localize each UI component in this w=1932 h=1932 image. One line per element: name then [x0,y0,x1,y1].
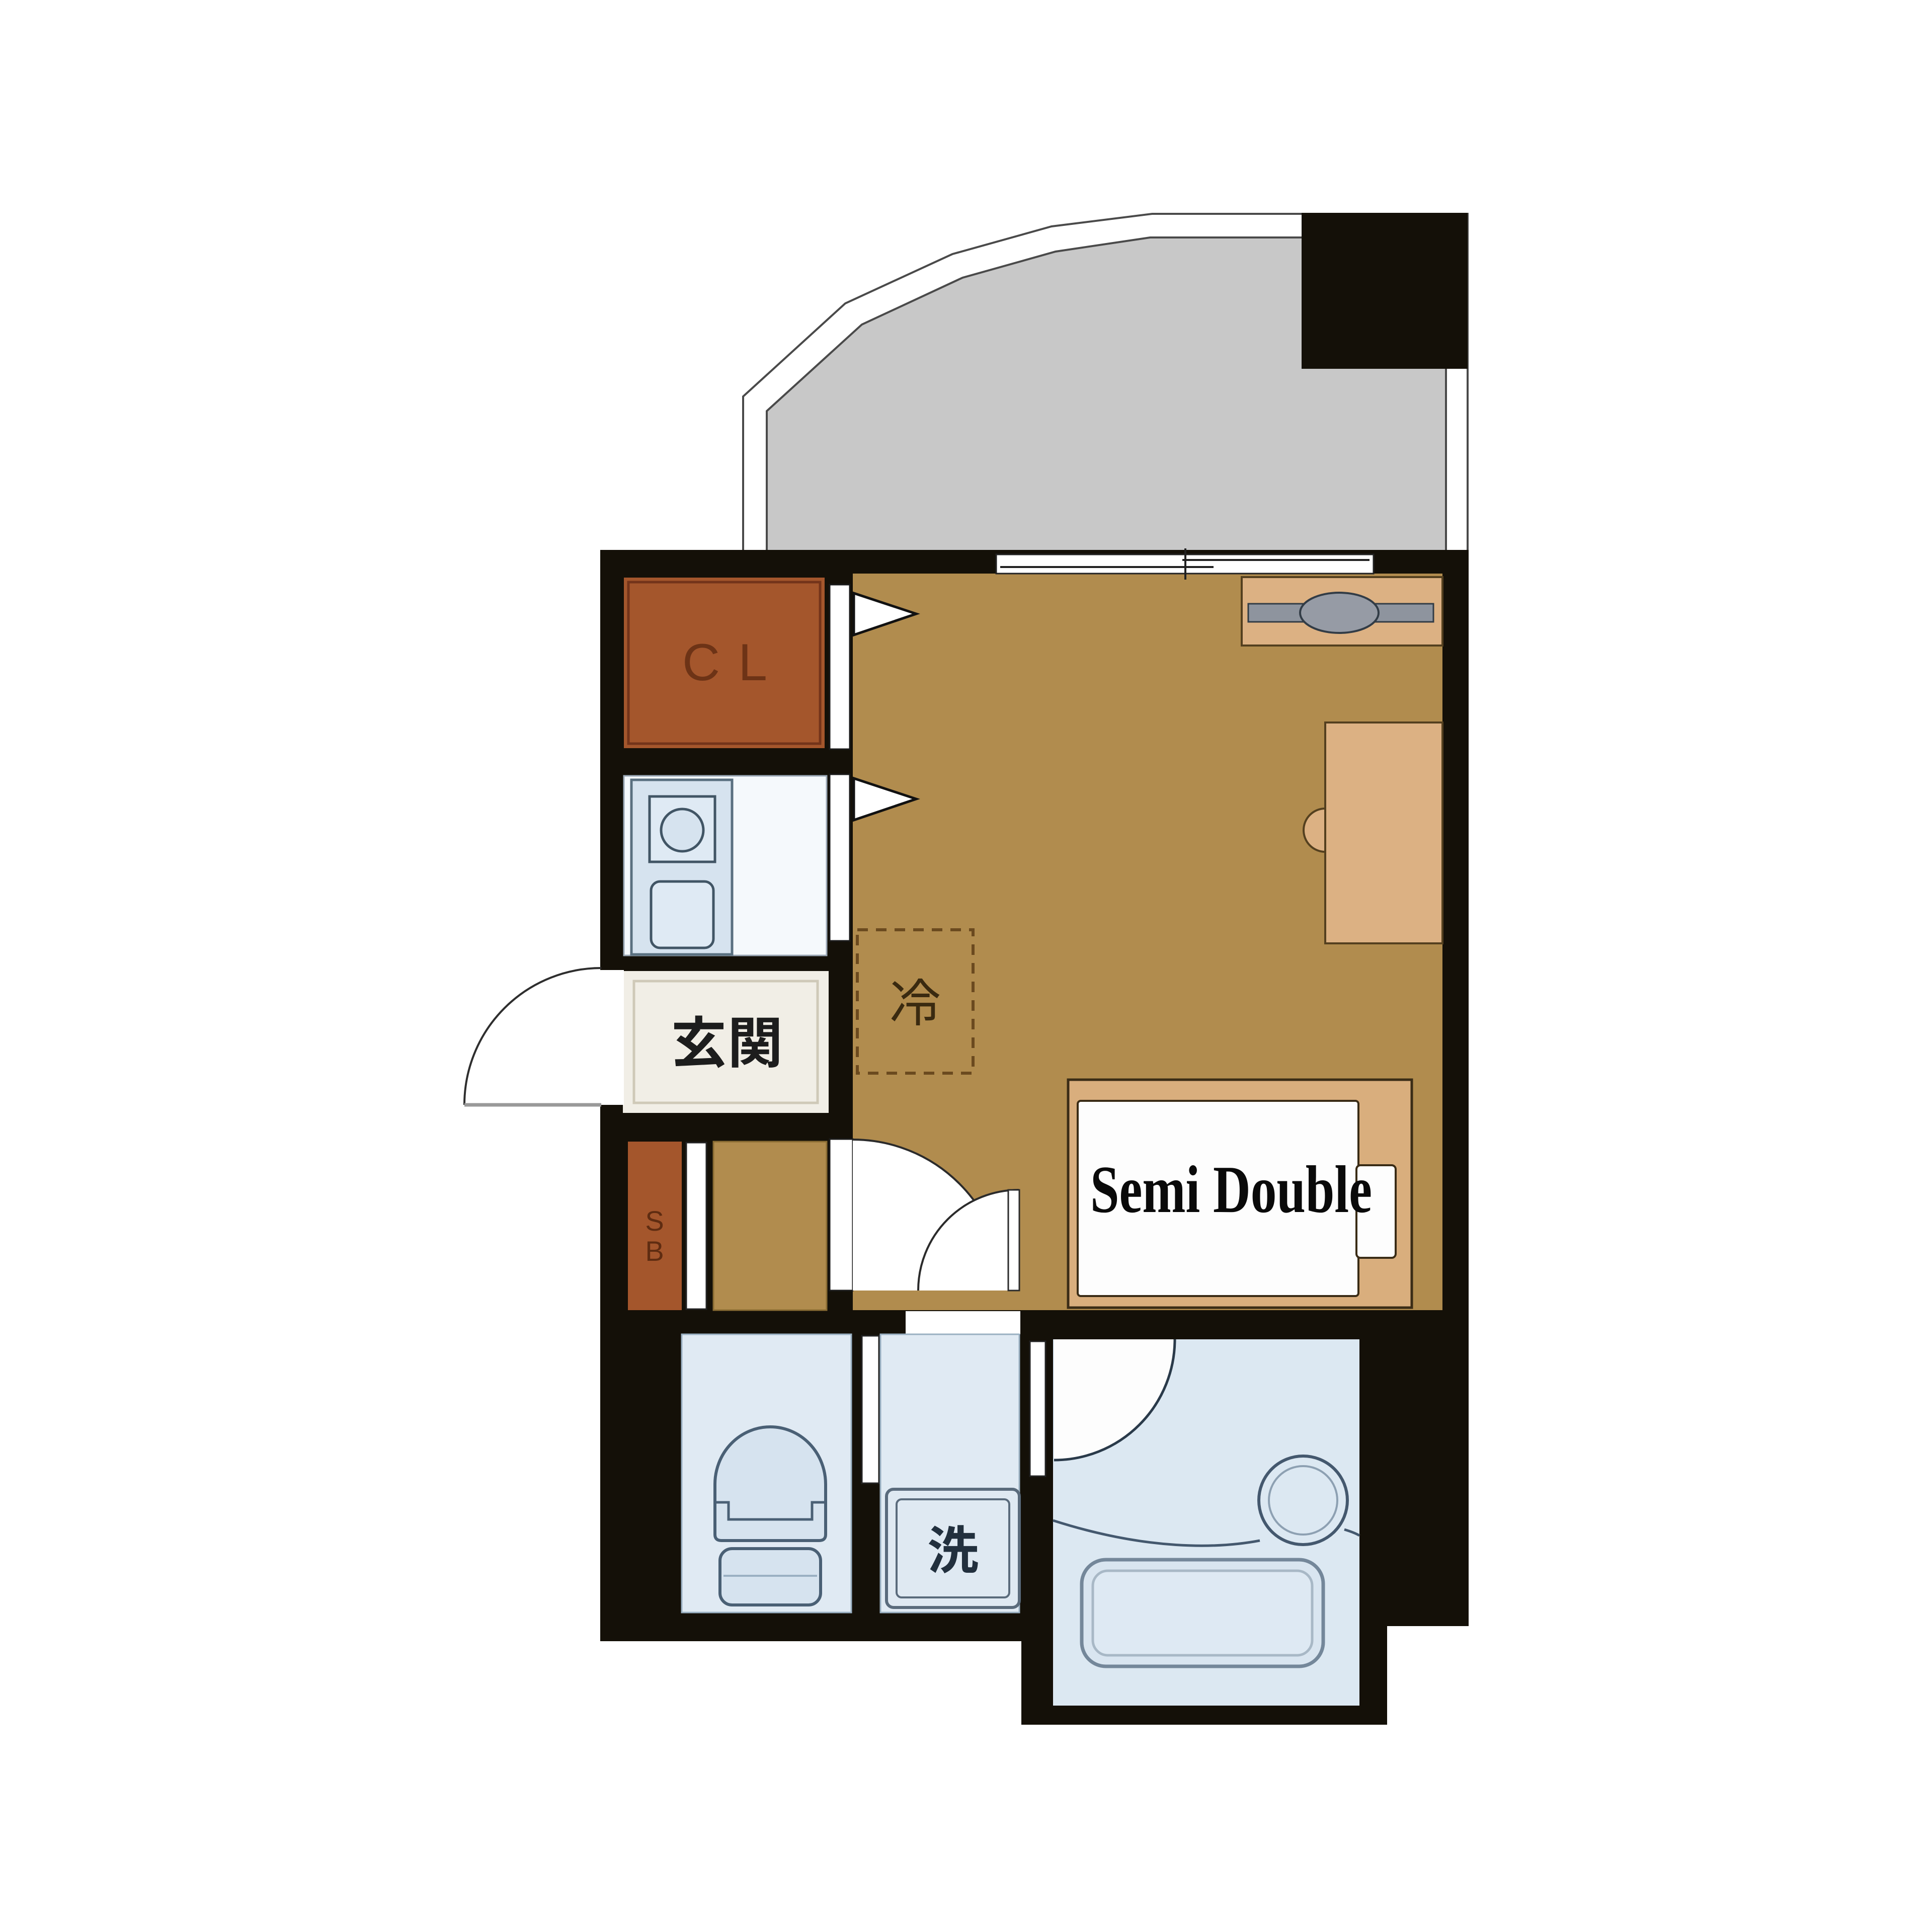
svg-text:CL: CL [682,633,785,692]
svg-text:Semi Double: Semi Double [1090,1152,1372,1227]
svg-text:B: B [645,1235,664,1267]
svg-text:S: S [645,1205,664,1237]
